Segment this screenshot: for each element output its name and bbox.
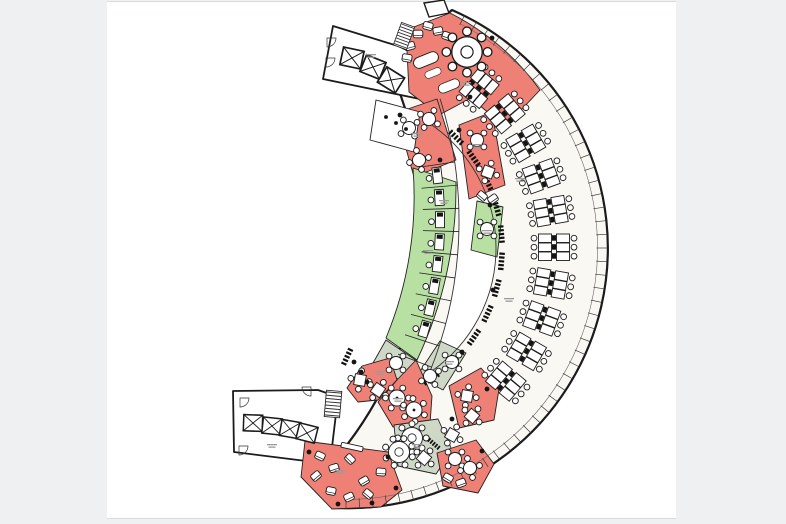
monitor-block <box>437 235 443 239</box>
blob-icon <box>386 455 391 460</box>
armchair <box>376 468 386 476</box>
blob-icon <box>398 113 403 118</box>
blob-icon <box>365 380 370 385</box>
chair <box>529 220 536 227</box>
round8-icon <box>442 27 492 77</box>
equipment-dot <box>365 380 370 385</box>
equipment-dot <box>404 127 408 131</box>
table <box>449 453 462 466</box>
chair <box>531 244 537 250</box>
desk <box>539 234 552 243</box>
desk <box>536 216 550 227</box>
chair <box>414 119 421 126</box>
room-label-mark <box>504 298 514 299</box>
equipment-dot <box>307 450 312 455</box>
desk <box>533 285 547 296</box>
chair <box>429 219 435 225</box>
equipment-dot <box>468 95 473 100</box>
equipment-dot <box>386 455 391 460</box>
room-label-mark <box>506 301 513 302</box>
chair <box>477 33 486 42</box>
chair <box>463 68 472 77</box>
equipment-dot <box>485 387 490 392</box>
chair <box>400 385 406 391</box>
room-label-mark <box>414 136 421 137</box>
chair <box>409 421 415 427</box>
chair <box>448 33 457 42</box>
monitor-block <box>436 190 442 194</box>
room-label-mark <box>412 133 422 134</box>
chair <box>526 202 533 209</box>
blob-icon <box>490 36 495 41</box>
chair <box>528 211 535 218</box>
blob-icon <box>485 387 490 392</box>
round4-icon <box>386 353 406 373</box>
chair <box>448 62 457 71</box>
equipment-dot <box>491 288 496 293</box>
room-label-mark <box>335 470 345 471</box>
chair <box>388 405 394 411</box>
blob-icon <box>491 288 496 293</box>
chair <box>399 425 405 431</box>
room-label-mark <box>425 253 432 254</box>
room-label-mark <box>482 230 492 231</box>
chair <box>355 386 362 393</box>
chair <box>566 292 573 299</box>
armchair <box>326 486 337 495</box>
equipment-dot <box>398 113 403 118</box>
blob-icon <box>404 127 408 131</box>
chair <box>426 175 432 181</box>
equipment-dot <box>450 417 455 422</box>
armchair <box>402 53 413 62</box>
desk <box>557 234 570 243</box>
blob-icon <box>359 370 364 375</box>
blob-icon <box>394 486 399 491</box>
chair <box>477 62 486 71</box>
desk <box>551 288 565 299</box>
equipment-dot <box>359 370 364 375</box>
storage-cabinet <box>343 349 351 365</box>
room-label-mark <box>366 54 376 55</box>
chair <box>445 463 451 469</box>
monitor-block <box>552 253 556 259</box>
chair <box>569 275 576 282</box>
equipment-dot <box>394 486 399 491</box>
monitor-block <box>435 257 441 262</box>
table <box>354 374 367 387</box>
room-label-mark <box>393 398 403 399</box>
desk <box>557 252 570 261</box>
chair <box>567 204 574 211</box>
chair <box>459 449 465 455</box>
equipment-dot <box>438 158 443 163</box>
room-label-mark <box>444 361 454 362</box>
chair <box>531 235 537 241</box>
arm-icon <box>402 53 413 62</box>
chair <box>467 130 473 136</box>
room-label-mark <box>472 144 482 145</box>
chair <box>531 253 537 259</box>
elev-icon <box>296 423 318 443</box>
monitor-block <box>437 213 443 217</box>
room-label-mark <box>446 364 453 365</box>
image-viewer-canvas <box>0 0 786 524</box>
chair <box>398 130 405 137</box>
chair <box>463 27 472 36</box>
blob-icon <box>394 121 398 125</box>
stair-outline <box>324 390 342 418</box>
room-label-mark <box>463 85 470 86</box>
blob-icon <box>488 203 493 208</box>
chair <box>567 283 574 290</box>
chair <box>569 213 576 220</box>
room-label-mark <box>377 374 384 375</box>
equipment-dot <box>394 121 398 125</box>
arm-icon <box>433 26 444 35</box>
chair <box>491 219 497 225</box>
elev-icon <box>340 47 364 69</box>
desk <box>554 213 568 224</box>
chair <box>383 395 389 401</box>
chair <box>419 445 425 451</box>
chair <box>483 48 492 57</box>
chair <box>571 244 577 250</box>
chair <box>529 268 536 275</box>
chair <box>386 367 392 373</box>
chair <box>426 262 432 268</box>
monitor-block <box>552 235 556 241</box>
chair <box>400 353 406 359</box>
chair <box>465 383 472 390</box>
desk <box>539 252 552 261</box>
comb-icon <box>343 349 351 365</box>
blob-icon <box>457 128 462 133</box>
chair <box>442 48 451 57</box>
blob-icon <box>336 502 341 507</box>
equipment-dot <box>457 128 462 133</box>
chair <box>445 449 451 455</box>
floor-plan-svg <box>0 0 786 524</box>
room-label-mark <box>441 203 448 204</box>
blob-icon <box>370 501 375 506</box>
room-label-mark <box>414 447 421 448</box>
room-label-mark <box>368 57 375 58</box>
chair <box>428 240 434 246</box>
room-label-mark <box>412 444 422 445</box>
arm-icon <box>376 468 386 476</box>
room-label-mark <box>461 82 471 83</box>
table <box>390 357 403 370</box>
chair <box>422 283 429 290</box>
room-label-mark <box>515 178 525 179</box>
chair <box>571 235 577 241</box>
chair <box>347 375 354 382</box>
room-label-mark <box>517 181 524 182</box>
chair <box>477 233 483 239</box>
room-label-mark <box>375 371 385 372</box>
chair <box>386 353 392 359</box>
room-label-mark <box>267 444 277 445</box>
equipment-dot <box>352 360 357 365</box>
blob-icon <box>352 360 357 365</box>
blob-icon <box>438 158 443 163</box>
equipment-dot <box>488 203 493 208</box>
chair <box>491 233 497 239</box>
blob-icon <box>480 449 485 454</box>
chair <box>428 197 434 203</box>
room-label-mark <box>439 200 449 201</box>
elev-icon <box>243 415 262 432</box>
equipment-dot <box>336 502 341 507</box>
chair <box>571 253 577 259</box>
desk <box>539 243 552 252</box>
round4-icon <box>477 219 497 239</box>
arm-icon <box>326 486 337 495</box>
room-label-mark <box>484 233 491 234</box>
room-label-mark <box>269 447 276 448</box>
chair <box>481 130 487 136</box>
chair <box>526 285 533 292</box>
desk <box>557 243 570 252</box>
round4-icon <box>445 449 465 469</box>
equipment-dot <box>384 115 388 119</box>
blob-icon <box>384 115 388 119</box>
chair <box>442 366 448 372</box>
equipment-dot <box>370 501 375 506</box>
chair <box>454 391 461 398</box>
equipment-dot <box>480 449 485 454</box>
table <box>452 37 482 67</box>
armchair <box>433 26 444 35</box>
equipment-dot <box>490 36 495 41</box>
chair <box>419 425 425 431</box>
monitor-block <box>552 244 556 250</box>
blob-icon <box>460 350 465 355</box>
chair <box>400 367 406 373</box>
room-label-mark <box>423 250 433 251</box>
room-label-mark <box>337 473 344 474</box>
chair <box>477 219 483 225</box>
chair <box>400 117 407 124</box>
monitor-block <box>433 168 439 173</box>
blob-icon <box>307 450 312 455</box>
chair <box>473 394 480 401</box>
chair <box>456 366 462 372</box>
blob-icon <box>450 417 455 422</box>
chair <box>565 195 572 202</box>
table <box>461 390 474 403</box>
arm-icon <box>413 30 423 38</box>
chair <box>528 276 535 283</box>
chair <box>388 385 394 391</box>
equipment-dot <box>460 350 465 355</box>
blob-icon <box>468 95 473 100</box>
chair <box>442 352 448 358</box>
room-label-mark <box>474 147 481 148</box>
armchair <box>413 30 423 38</box>
room-label-mark <box>395 401 402 402</box>
stairs-icon <box>324 390 342 418</box>
